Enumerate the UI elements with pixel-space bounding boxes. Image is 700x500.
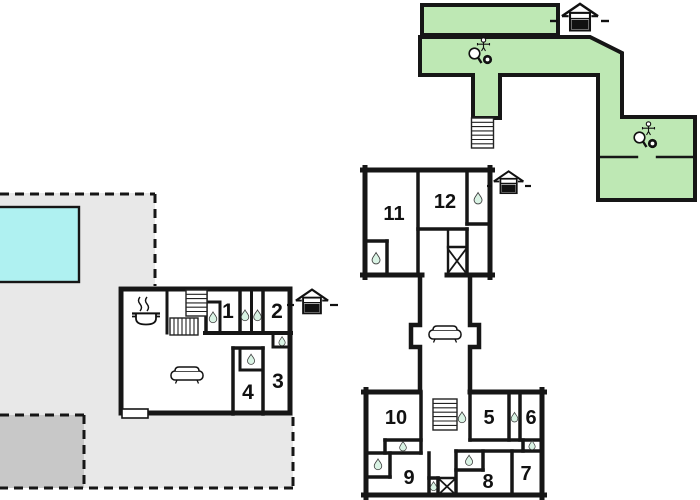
room-label-12: 12 [434,191,456,213]
entrance-icon [287,290,338,314]
room-label-4: 4 [242,381,254,404]
water-drop-icon [465,455,472,465]
water-drop-icon [511,412,518,422]
room-label-7: 7 [520,463,531,485]
water-drop-icon [372,253,380,264]
entrance-icon [487,171,531,193]
entrance-door [122,409,148,418]
room-label-8: 8 [482,471,493,493]
patio-surface [0,415,84,488]
stairs [170,290,207,335]
room-label-9: 9 [403,467,414,489]
sofa-icon [429,326,461,343]
upper-balcony [422,5,558,35]
terrace-area [0,193,293,488]
room-label-10: 10 [385,407,407,429]
corridor [411,277,479,392]
room-label-11: 11 [383,203,404,225]
sofa-icon [171,367,203,384]
shaft [448,229,467,273]
water-drop-icon [374,459,382,470]
water-drop-icon [241,310,249,321]
water-drop-icon [458,412,466,423]
annex-upper-building: 11 12 [363,168,532,278]
room-label-2: 2 [271,300,283,323]
stairs [433,399,457,430]
water-drop-icon [430,482,436,491]
annex-lower-building: 10 5 6 9 8 7 [364,390,545,498]
kitchen-icon [132,297,160,325]
water-drop-icon [254,310,262,321]
main-house: 1 2 3 4 [121,289,338,418]
shaft [438,478,456,495]
room-label-6: 6 [525,407,536,429]
floor-plan-drawing: 11 12 [0,0,700,500]
water-drop-icon [209,312,217,323]
room-label-5: 5 [483,407,494,429]
swimming-pool [0,207,79,282]
room-label-1: 1 [222,300,234,323]
water-drop-icon [400,441,407,451]
water-drop-icon [474,193,482,204]
room-label-3: 3 [272,370,284,393]
water-drop-icon [247,354,254,364]
outdoor-stairs [472,118,494,148]
floor-plan-page: 11 12 [0,0,700,500]
water-drop-icon [529,441,535,450]
water-drop-icon [279,337,285,346]
games-room [420,37,695,200]
